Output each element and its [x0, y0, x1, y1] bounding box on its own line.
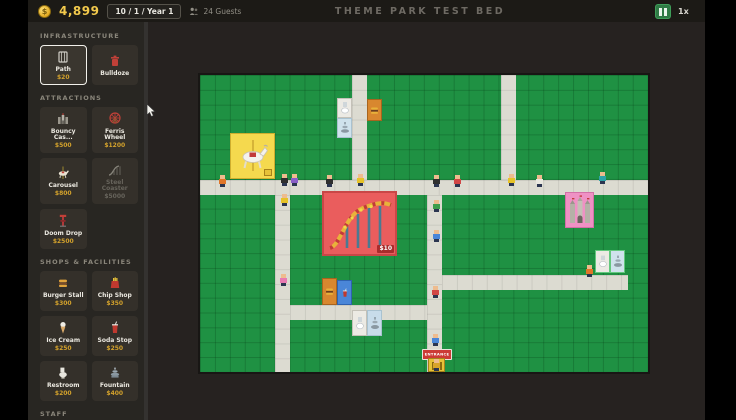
speed-indicator[interactable]: 1x	[678, 0, 689, 22]
guest[interactable]	[326, 175, 333, 187]
guest[interactable]	[433, 230, 440, 242]
guest[interactable]	[280, 274, 287, 286]
guest[interactable]	[599, 172, 606, 184]
card-bulldoze[interactable]: Bulldoze	[92, 45, 139, 85]
card-path[interactable]: Path $20	[40, 45, 87, 85]
guest[interactable]	[433, 359, 440, 371]
guest[interactable]	[291, 174, 298, 186]
card-doom-drop[interactable]: Doom Drop $2500	[40, 209, 87, 249]
card-steel-coaster[interactable]: Steel Coaster $5000	[92, 158, 139, 204]
guest-count: 24 Guests	[203, 7, 241, 16]
card-price: $2500	[53, 239, 74, 245]
guest[interactable]	[357, 174, 364, 186]
card-name: Chip Shop	[98, 293, 132, 299]
card-price: $1200	[104, 143, 125, 149]
top-bar: $ 4,899 10 / 1 / Year 1 24 Guests THEME …	[28, 0, 705, 23]
section-title: SHOPS & FACILITIES	[40, 258, 138, 266]
card-name: Soda Stop	[98, 338, 132, 344]
pause-button[interactable]	[655, 4, 671, 19]
path-icon	[55, 49, 71, 65]
toilet-icon	[55, 365, 71, 381]
fountain-icon	[107, 365, 123, 381]
guest[interactable]	[454, 175, 461, 187]
card-price: $250	[55, 346, 72, 352]
mouse-cursor	[146, 104, 157, 118]
card-price: $800	[55, 191, 72, 197]
section-title: INFRASTRUCTURE	[40, 32, 138, 40]
money-amount: 4,899	[59, 4, 99, 18]
section-infrastructure: INFRASTRUCTURE Path $20	[40, 32, 138, 85]
guest[interactable]	[432, 286, 439, 298]
game-viewport: $10	[148, 22, 705, 420]
bouncy-castle-icon	[55, 111, 71, 127]
card-name: Carousel	[48, 183, 78, 189]
card-soda-stop[interactable]: Soda Stop $250	[92, 316, 139, 356]
guest[interactable]	[586, 265, 593, 277]
card-carousel[interactable]: Carousel $800	[40, 158, 87, 204]
ice-cream-icon	[55, 320, 71, 336]
guest[interactable]	[433, 175, 440, 187]
section-shops: SHOPS & FACILITIES Burger Stall $300	[40, 258, 138, 401]
burger-icon	[55, 275, 71, 291]
theme-park-game-window: $ 4,899 10 / 1 / Year 1 24 Guests THEME …	[0, 0, 736, 420]
section-title: STAFF	[40, 410, 138, 418]
card-name: Burger Stall	[43, 293, 84, 299]
section-attractions: ATTRACTIONS Bouncy Cas... $500	[40, 94, 138, 249]
card-burger-stall[interactable]: Burger Stall $300	[40, 271, 87, 311]
guest[interactable]	[281, 194, 288, 206]
carousel-horse-icon	[55, 165, 71, 181]
card-name: Steel Coaster	[94, 180, 137, 192]
card-name: Bulldoze	[100, 71, 129, 77]
card-name: Path	[56, 67, 71, 73]
card-bouncy-castle[interactable]: Bouncy Cas... $500	[40, 107, 87, 153]
section-staff: STAFF Handyman $100 HIRE Mechanic	[40, 410, 138, 420]
ferris-wheel-icon	[107, 111, 123, 127]
fries-icon	[107, 275, 123, 291]
card-name: Restroom	[47, 383, 80, 389]
guest[interactable]	[536, 175, 543, 187]
card-ice-cream[interactable]: Ice Cream $250	[40, 316, 87, 356]
card-price: $250	[106, 346, 123, 352]
steel-coaster-icon	[107, 162, 123, 178]
coin-icon: $	[38, 5, 51, 18]
guest[interactable]	[219, 175, 226, 187]
card-name: Ice Cream	[46, 338, 80, 344]
card-price: $500	[55, 143, 72, 149]
date-display: 10 / 1 / Year 1	[107, 4, 181, 19]
card-price: $350	[106, 301, 123, 307]
card-fountain[interactable]: Fountain $400	[92, 361, 139, 401]
card-ferris-wheel[interactable]: Ferris Wheel $1200	[92, 107, 139, 153]
park-map[interactable]: $10	[200, 75, 648, 372]
card-chip-shop[interactable]: Chip Shop $350	[92, 271, 139, 311]
guest[interactable]	[281, 174, 288, 186]
guests-icon	[189, 7, 199, 16]
card-price: $400	[106, 391, 123, 397]
guest[interactable]	[432, 334, 439, 346]
build-sidebar: INFRASTRUCTURE Path $20	[28, 22, 148, 420]
card-price: $300	[55, 301, 72, 307]
card-price: $20	[57, 75, 70, 81]
guest[interactable]	[508, 174, 515, 186]
card-name: Ferris Wheel	[94, 129, 137, 141]
guest-layer	[200, 75, 648, 372]
card-name: Fountain	[100, 383, 130, 389]
guest[interactable]	[433, 200, 440, 212]
card-name: Doom Drop	[44, 231, 82, 237]
park-title: THEME PARK TEST BED	[335, 0, 505, 22]
card-price: $5000	[104, 194, 125, 200]
bulldoze-trash-icon	[107, 53, 123, 69]
doom-drop-icon	[55, 213, 71, 229]
card-restroom[interactable]: Restroom $200	[40, 361, 87, 401]
section-title: ATTRACTIONS	[40, 94, 138, 102]
card-price: $200	[55, 391, 72, 397]
soda-cup-icon	[107, 320, 123, 336]
card-name: Bouncy Cas...	[42, 129, 85, 141]
